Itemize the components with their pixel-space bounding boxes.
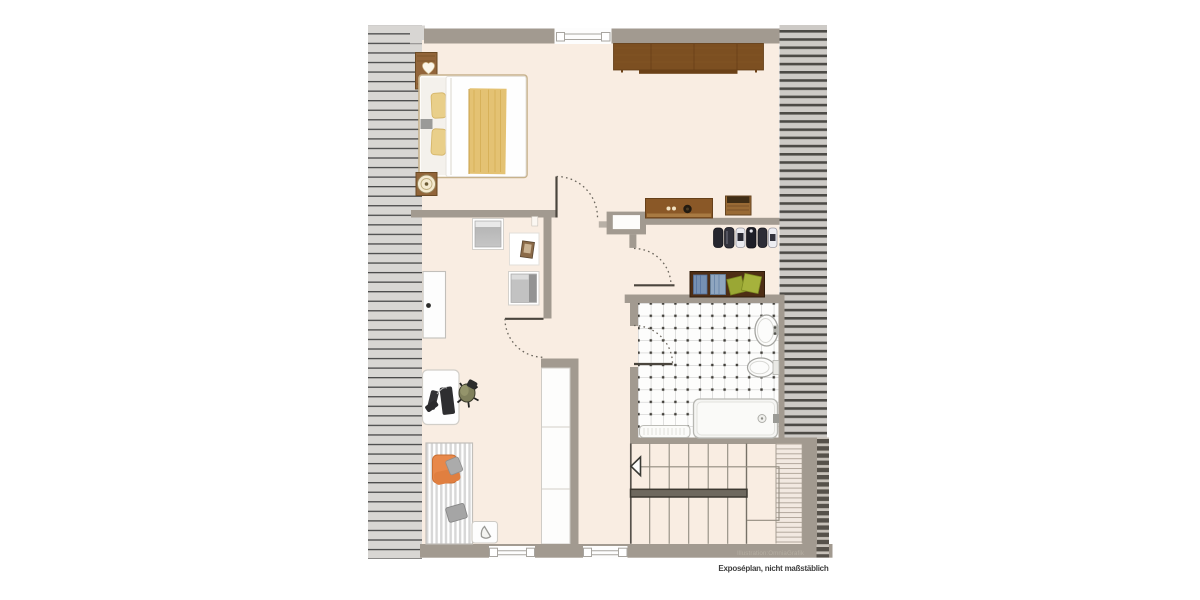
svg-text:Exposéplan, nicht maßstäblich: Exposéplan, nicht maßstäblich <box>718 564 828 573</box>
svg-text:Illustration:OmniaGrafik: Illustration:OmniaGrafik <box>737 550 805 557</box>
